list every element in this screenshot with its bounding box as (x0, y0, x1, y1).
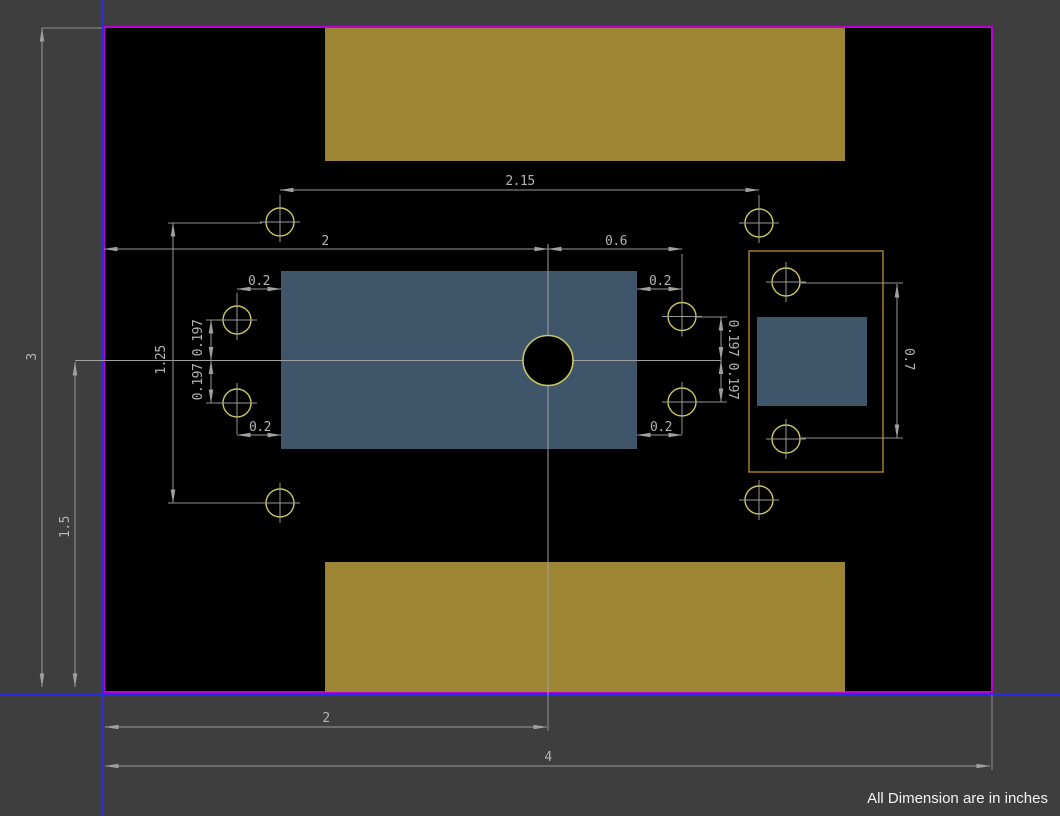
dimension-label: 2 (322, 711, 329, 726)
dimension-center-from-bottom[interactable]: 1.5 (58, 362, 75, 687)
dimension-label: 0.7 (901, 348, 916, 370)
units-note: All Dimension are in inches (867, 790, 1048, 807)
dimension-center-from-left[interactable]: 2 (105, 711, 547, 727)
dimension-label: 0.197 (191, 364, 206, 401)
dimension-label: 0.197 (725, 363, 740, 400)
dimension-label: 4 (544, 750, 552, 765)
dimension-label: 0.2 (650, 420, 672, 435)
dimension-label: 0.2 (649, 274, 671, 289)
center-hole[interactable] (523, 336, 573, 386)
dimension-label: 3 (25, 353, 40, 360)
dimension-label: 0.197 (191, 320, 206, 357)
dimension-label: 0.197 (725, 320, 740, 357)
dimension-board-height[interactable]: 3 (25, 28, 42, 687)
dimension-label: 0.2 (248, 274, 270, 289)
top-copper-zone[interactable] (325, 28, 845, 161)
dimension-label: 0.2 (249, 420, 271, 435)
bottom-copper-zone[interactable] (325, 562, 845, 692)
dimension-label: 0.6 (605, 234, 627, 249)
cad-viewport: 2.15 2 0.6 0.2 0.2 0.2 0.2 0.197 0.197 0… (0, 0, 1060, 816)
dimension-label: 2 (321, 234, 328, 249)
dimension-board-width[interactable]: 4 (105, 750, 990, 766)
dimension-label: 1.25 (154, 345, 169, 374)
dimension-label: 1.5 (58, 516, 73, 538)
cad-drawing: 2.15 2 0.6 0.2 0.2 0.2 0.2 0.197 0.197 0… (0, 0, 1060, 816)
right-pad[interactable] (757, 317, 867, 406)
dimension-label: 2.15 (505, 174, 534, 189)
